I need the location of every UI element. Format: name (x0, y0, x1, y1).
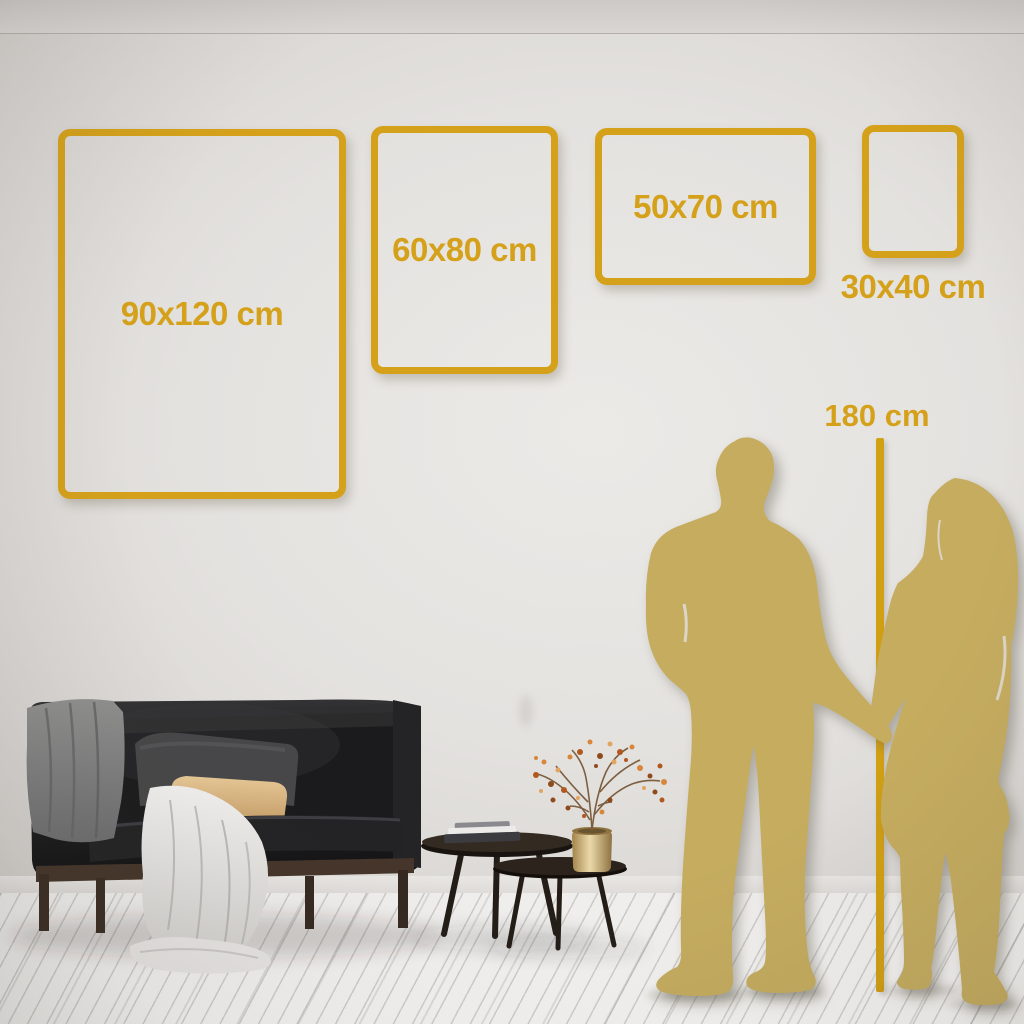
couple-silhouettes (0, 0, 1024, 1024)
man-silhouette (646, 437, 892, 996)
size-guide-scene: 90x120 cm 60x80 cm 50x70 cm 30x40 cm 180… (0, 0, 1024, 1024)
woman-silhouette (868, 478, 1018, 1005)
